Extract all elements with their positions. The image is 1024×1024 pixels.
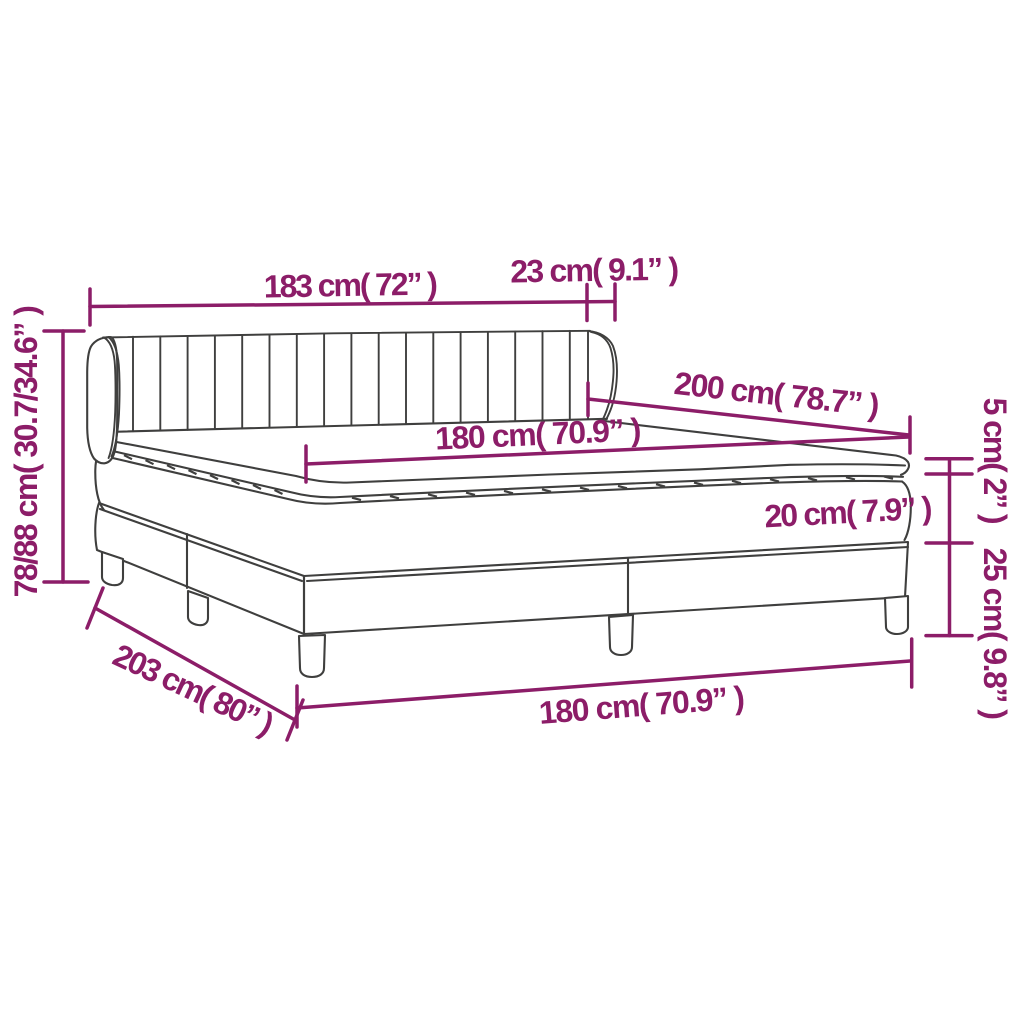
svg-text:25 cm( 9.8” ): 25 cm( 9.8” ) [977,548,1013,720]
svg-text:23 cm( 9.1” ): 23 cm( 9.1” ) [510,251,679,290]
svg-text:5 cm( 2” ): 5 cm( 2” ) [977,398,1013,524]
svg-text:183 cm( 72” ): 183 cm( 72” ) [264,265,438,304]
svg-text:78/88 cm( 30.7/34.6” ): 78/88 cm( 30.7/34.6” ) [8,306,44,598]
